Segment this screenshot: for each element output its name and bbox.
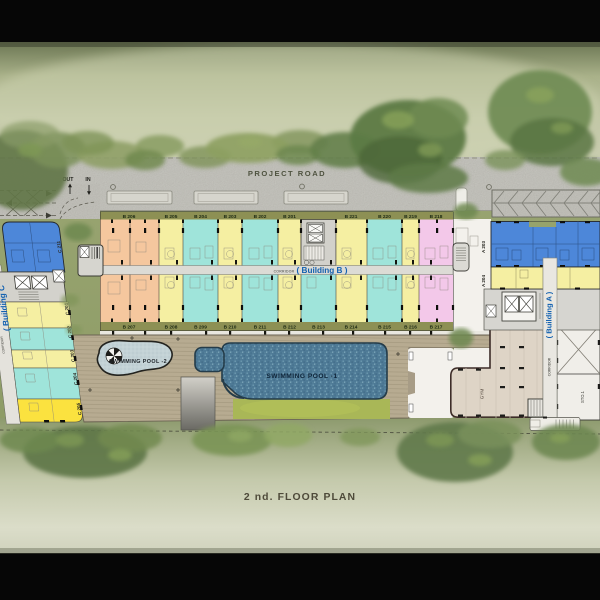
svg-text:( Building A ): ( Building A ) <box>545 291 554 338</box>
svg-text:B 208: B 208 <box>165 325 178 331</box>
svg-text:B 213: B 213 <box>312 325 325 331</box>
svg-text:B 220: B 220 <box>378 214 391 220</box>
svg-text:( Building B ): ( Building B ) <box>297 266 348 275</box>
svg-text:A 204: A 204 <box>481 275 486 288</box>
svg-text:B 212: B 212 <box>283 325 296 331</box>
svg-text:SWIMMING POOL -2: SWIMMING POOL -2 <box>109 359 167 365</box>
svg-text:B 211: B 211 <box>254 325 267 331</box>
svg-text:B 205: B 205 <box>165 214 178 220</box>
svg-text:B 215: B 215 <box>378 325 391 331</box>
svg-text:B 219: B 219 <box>404 214 417 220</box>
svg-text:B 204: B 204 <box>194 214 207 220</box>
svg-text:B 207: B 207 <box>123 325 136 331</box>
svg-text:2 nd. FLOOR PLAN: 2 nd. FLOOR PLAN <box>244 492 356 503</box>
svg-text:A 203: A 203 <box>481 241 486 254</box>
svg-text:B 214: B 214 <box>345 325 358 331</box>
svg-text:IN: IN <box>85 177 90 183</box>
svg-text:STO.1: STO.1 <box>580 390 585 403</box>
svg-text:CORRIDOR: CORRIDOR <box>548 357 552 376</box>
svg-text:B 216: B 216 <box>404 325 417 331</box>
svg-text:B 210: B 210 <box>224 325 237 331</box>
svg-text:GYM: GYM <box>480 389 485 400</box>
svg-text:B 209: B 209 <box>194 325 207 331</box>
svg-text:SWIMMING POOL -1: SWIMMING POOL -1 <box>266 373 337 380</box>
svg-text:CORRIDOR: CORRIDOR <box>274 270 295 274</box>
svg-text:B 218: B 218 <box>430 214 443 220</box>
svg-text:B 203: B 203 <box>224 214 237 220</box>
svg-text:B 217: B 217 <box>430 325 443 331</box>
svg-text:B 201: B 201 <box>283 214 296 220</box>
svg-text:B 202: B 202 <box>254 214 267 220</box>
svg-text:PROJECT ROAD: PROJECT ROAD <box>248 169 326 178</box>
svg-text:B 206: B 206 <box>123 214 136 220</box>
svg-text:B 221: B 221 <box>345 214 358 220</box>
